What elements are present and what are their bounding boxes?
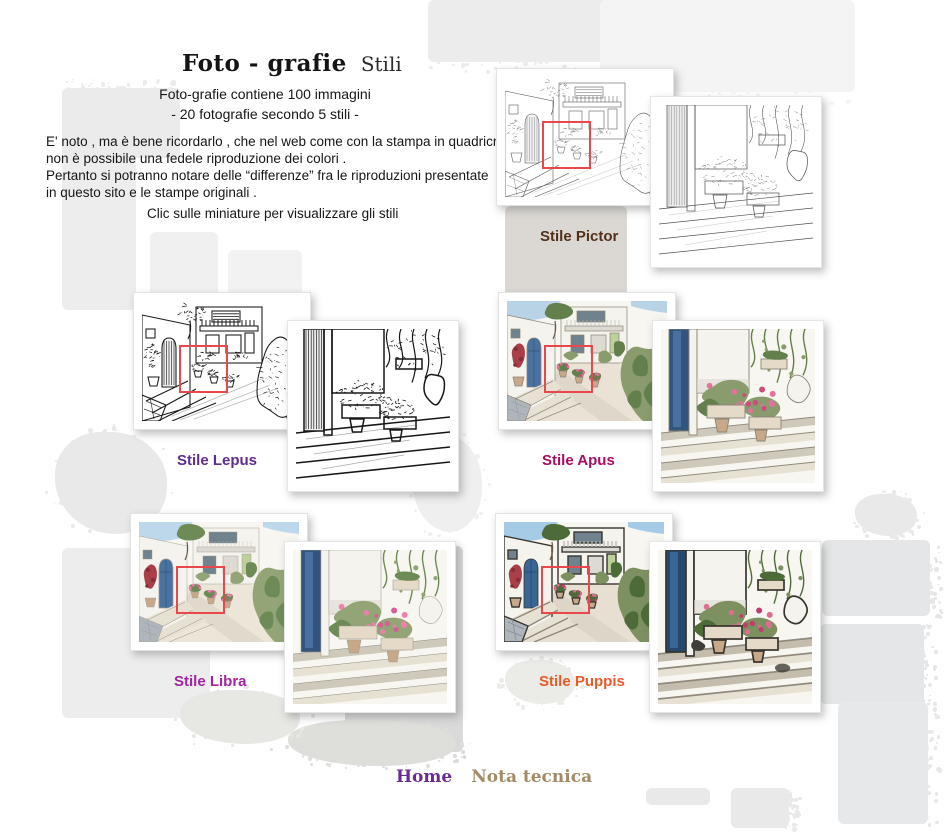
style-detail-image-pictor[interactable] — [650, 96, 822, 268]
splatter-dot — [507, 60, 509, 62]
splatter-dot — [923, 576, 924, 577]
splatter-dot — [193, 743, 195, 745]
splatter-texture — [855, 494, 917, 536]
splatter-dot — [927, 649, 928, 650]
splatter-dot — [434, 59, 437, 62]
splatter-dot — [330, 763, 332, 765]
splatter-dot — [798, 797, 801, 800]
splatter-dot — [786, 818, 790, 822]
splatter-dot — [548, 54, 552, 58]
splatter-dot — [73, 444, 75, 446]
splatter-dot — [499, 62, 502, 65]
splatter-dot — [926, 604, 929, 607]
splatter-dot — [789, 825, 791, 827]
splatter-dot — [428, 532, 432, 536]
splatter-dot — [931, 787, 933, 789]
splatter-dot — [231, 744, 234, 747]
splatter-dot — [501, 684, 506, 689]
splatter-dot — [918, 779, 922, 783]
click-instruction: Clic sulle miniature per visualizzare gl… — [147, 206, 398, 221]
splatter-dot — [441, 761, 442, 762]
splatter-dot — [907, 498, 912, 503]
splatter-dot — [517, 674, 522, 679]
detail-crop-art — [661, 329, 815, 483]
splatter-dot — [863, 530, 867, 534]
splatter-dot — [921, 612, 923, 614]
splatter-dot — [792, 827, 796, 831]
detail-crop-art — [658, 550, 812, 704]
splatter-dot — [440, 754, 445, 759]
splatter-dot — [925, 636, 927, 638]
intro-paragraph: E' noto , ma è bene ricordarlo , che nel… — [46, 133, 527, 201]
splatter-dot — [425, 505, 427, 507]
splatter-dot — [116, 429, 118, 431]
splatter-dot — [195, 696, 197, 698]
style-detail-image-apus[interactable] — [652, 320, 824, 492]
splatter-dot — [901, 491, 902, 492]
splatter-dot — [927, 574, 929, 576]
splatter-dot — [515, 661, 516, 662]
splatter-dot — [465, 63, 468, 66]
splatter-dot — [80, 440, 83, 443]
splatter-dot — [226, 697, 231, 702]
splatter-dot — [443, 66, 444, 67]
splatter-dot — [936, 742, 938, 744]
splatter-dot — [86, 84, 87, 85]
splatter-dot — [921, 589, 925, 593]
splatter-dot — [516, 702, 520, 706]
splatter-dot — [922, 705, 926, 709]
splatter-dot — [563, 662, 564, 663]
splatter-dot — [795, 813, 800, 818]
footer-nav: Home Nota tecnica — [396, 767, 592, 787]
splatter-dot — [718, 92, 722, 96]
splatter-dot — [521, 705, 526, 710]
splatter-dot — [71, 474, 72, 475]
splatter-dot — [70, 479, 73, 482]
splatter-dot — [917, 525, 921, 529]
splatter-dot — [791, 790, 792, 791]
splatter-dot — [99, 90, 104, 95]
splatter-dot — [917, 631, 920, 634]
background-collage-shape — [822, 540, 930, 616]
style-thumbnail-libra[interactable] — [130, 513, 308, 651]
style-label-lepus: Stile Lepus — [177, 452, 257, 469]
splatter-dot — [794, 798, 798, 802]
splatter-dot — [240, 692, 245, 697]
splatter-dot — [103, 429, 106, 432]
style-detail-image-lepus[interactable] — [287, 320, 459, 492]
splatter-dot — [543, 709, 545, 711]
splatter-dot — [871, 529, 874, 532]
style-thumbnail-pictor[interactable] — [496, 68, 674, 206]
splatter-dot — [453, 760, 456, 763]
splatter-dot — [60, 490, 63, 493]
splatter-dot — [937, 735, 941, 739]
background-collage-shape — [838, 702, 928, 824]
splatter-dot — [923, 730, 927, 734]
splatter-dot — [327, 757, 329, 759]
splatter-dot — [905, 493, 907, 495]
splatter-dot — [938, 768, 942, 772]
splatter-dot — [933, 592, 937, 596]
splatter-dot — [890, 534, 895, 539]
splatter-dot — [421, 495, 423, 497]
splatter-dot — [66, 461, 69, 464]
splatter-dot — [364, 727, 366, 729]
splatter-dot — [481, 64, 483, 66]
detail-crop-art — [293, 550, 447, 704]
splatter-dot — [55, 460, 57, 462]
style-thumbnail-puppis[interactable] — [495, 513, 673, 651]
splatter-dot — [923, 725, 926, 728]
splatter-dot — [162, 448, 165, 451]
splatter-dot — [924, 754, 926, 756]
splatter-dot — [197, 707, 201, 711]
splatter-dot — [927, 785, 930, 788]
splatter-dot — [781, 792, 785, 796]
style-detail-image-puppis[interactable] — [649, 541, 821, 713]
splatter-dot — [192, 734, 196, 738]
splatter-dot — [174, 718, 177, 721]
splatter-dot — [929, 695, 930, 696]
splatter-dot — [529, 667, 533, 671]
splatter-dot — [711, 90, 714, 93]
splatter-dot — [938, 552, 940, 554]
splatter-dot — [431, 755, 434, 758]
splatter-dot — [431, 53, 434, 56]
splatter-dot — [343, 721, 345, 723]
splatter-dot — [918, 766, 921, 769]
splatter-dot — [935, 615, 939, 619]
splatter-dot — [916, 624, 920, 628]
splatter-dot — [933, 665, 937, 669]
splatter-dot — [922, 628, 924, 630]
splatter-dot — [171, 492, 173, 494]
splatter-dot — [255, 697, 258, 700]
splatter-dot — [78, 457, 79, 458]
splatter-dot — [409, 494, 413, 498]
splatter-dot — [461, 63, 466, 68]
splatter-dot — [911, 518, 914, 521]
splatter-dot — [67, 87, 70, 90]
splatter-dot — [471, 515, 474, 518]
splatter-dot — [396, 727, 400, 731]
splatter-dot — [920, 665, 924, 669]
splatter-dot — [923, 801, 925, 803]
splatter-dot — [927, 768, 930, 771]
splatter-dot — [424, 530, 427, 533]
splatter-dot — [437, 756, 438, 757]
splatter-dot — [71, 524, 75, 528]
page-title: Foto - grafieStili — [182, 50, 402, 77]
splatter-dot — [80, 448, 81, 449]
intro-paragraph-line-1: E' noto , ma è bene ricordarlo , che nel… — [46, 133, 527, 150]
splatter-dot — [933, 707, 938, 712]
splatter-dot — [864, 515, 868, 519]
splatter-dot — [337, 724, 340, 727]
splatter-dot — [929, 569, 931, 571]
splatter-dot — [551, 662, 554, 665]
splatter-dot — [332, 759, 336, 763]
splatter-dot — [783, 790, 785, 792]
splatter-dot — [83, 445, 85, 447]
splatter-dot — [283, 727, 286, 730]
splatter-dot — [511, 57, 515, 61]
splatter-dot — [486, 70, 490, 74]
splatter-dot — [469, 460, 470, 461]
splatter-dot — [147, 453, 152, 458]
splatter-dot — [81, 85, 86, 90]
splatter-dot — [862, 501, 865, 504]
page-title-sub: Stili — [361, 52, 402, 76]
splatter-dot — [940, 611, 943, 614]
splatter-dot — [910, 530, 914, 534]
foto-grafie-stili-page: Foto - grafieStili Foto-grafie contiene … — [0, 0, 950, 840]
splatter-dot — [419, 506, 423, 510]
splatter-dot — [934, 567, 939, 572]
splatter-dot — [310, 763, 313, 766]
splatter-dot — [566, 667, 571, 672]
splatter-dot — [196, 721, 199, 724]
splatter-dot — [914, 635, 918, 639]
splatter-dot — [282, 723, 283, 724]
splatter-dot — [88, 537, 89, 538]
splatter-dot — [108, 86, 111, 89]
splatter-dot — [316, 759, 318, 761]
splatter-dot — [308, 757, 312, 761]
splatter-dot — [892, 490, 896, 494]
splatter-dot — [923, 512, 925, 514]
splatter-dot — [423, 511, 426, 514]
splatter-dot — [111, 447, 114, 450]
splatter-dot — [449, 747, 454, 752]
splatter-dot — [463, 443, 465, 445]
splatter-dot — [858, 517, 859, 518]
splatter-dot — [865, 534, 869, 538]
splatter-dot — [922, 671, 923, 672]
intro-paragraph-line-3: Pertanto si potranno notare delle “diffe… — [46, 167, 527, 184]
splatter-dot — [732, 85, 734, 87]
splatter-dot — [746, 91, 749, 94]
splatter-dot — [486, 478, 488, 480]
zoom-region-marker — [542, 121, 591, 169]
splatter-dot — [309, 726, 310, 727]
style-label-puppis: Stile Puppis — [539, 673, 625, 690]
splatter-dot — [438, 760, 440, 762]
splatter-dot — [270, 748, 273, 751]
splatter-dot — [467, 442, 469, 444]
splatter-dot — [539, 656, 544, 661]
splatter-dot — [249, 737, 253, 741]
splatter-dot — [934, 676, 938, 680]
splatter-dot — [441, 520, 446, 525]
home-link[interactable]: Home — [396, 767, 452, 787]
splatter-dot — [127, 440, 131, 444]
splatter-dot — [357, 764, 360, 767]
intro-paragraph-line-4: in questo sito e le stampe originali . — [46, 184, 527, 201]
splatter-dot — [505, 688, 506, 689]
splatter-dot — [428, 724, 432, 728]
splatter-dot — [58, 460, 61, 463]
splatter-dot — [927, 791, 931, 795]
page-title-main: Foto - grafie — [182, 50, 347, 77]
splatter-dot — [54, 502, 56, 504]
splatter-dot — [723, 88, 726, 91]
splatter-dot — [896, 538, 899, 541]
splatter-dot — [919, 711, 921, 713]
splatter-dot — [183, 707, 186, 710]
splatter-dot — [479, 512, 482, 515]
splatter-dot — [920, 602, 922, 604]
splatter-dot — [71, 511, 72, 512]
splatter-dot — [455, 524, 458, 527]
splatter-dot — [830, 102, 834, 106]
splatter-dot — [922, 684, 926, 688]
splatter-dot — [920, 706, 923, 709]
splatter-dot — [789, 792, 793, 796]
splatter-texture — [288, 720, 456, 766]
splatter-dot — [928, 818, 929, 819]
splatter-dot — [929, 740, 932, 743]
splatter-dot — [302, 753, 305, 756]
splatter-dot — [421, 732, 423, 734]
splatter-dot — [311, 714, 315, 718]
splatter-dot — [922, 560, 924, 562]
splatter-dot — [414, 509, 418, 513]
splatter-dot — [792, 823, 795, 826]
splatter-dot — [514, 698, 517, 701]
splatter-dot — [928, 730, 931, 733]
intro-line-1: Foto-grafie contiene 100 immagini — [115, 86, 415, 102]
splatter-dot — [928, 764, 932, 768]
splatter-dot — [560, 701, 564, 705]
splatter-dot — [71, 456, 75, 460]
splatter-dot — [204, 737, 207, 740]
splatter-dot — [404, 722, 406, 724]
style-label-apus: Stile Apus — [542, 452, 615, 469]
splatter-dot — [59, 501, 63, 505]
splatter-dot — [538, 60, 542, 64]
zoom-region-marker — [541, 566, 590, 614]
splatter-dot — [939, 587, 943, 591]
splatter-dot — [327, 725, 330, 728]
splatter-dot — [463, 755, 466, 758]
splatter-dot — [873, 497, 878, 502]
splatter-dot — [939, 602, 941, 604]
splatter-dot — [437, 61, 440, 64]
splatter-dot — [511, 689, 514, 692]
splatter-dot — [575, 695, 578, 698]
splatter-dot — [418, 498, 419, 499]
splatter-dot — [731, 90, 736, 95]
splatter-dot — [932, 601, 936, 605]
splatter-dot — [925, 693, 927, 695]
splatter-dot — [916, 519, 919, 522]
splatter-dot — [108, 82, 110, 84]
splatter-dot — [904, 497, 907, 500]
splatter-dot — [545, 665, 549, 669]
splatter-dot — [932, 605, 937, 610]
splatter-dot — [132, 435, 136, 439]
splatter-dot — [889, 532, 892, 535]
splatter-dot — [921, 695, 924, 698]
splatter-dot — [866, 526, 870, 530]
splatter-dot — [254, 693, 257, 696]
splatter-dot — [784, 85, 787, 88]
splatter-dot — [552, 707, 554, 709]
splatter-dot — [72, 81, 74, 83]
splatter-dot — [150, 489, 154, 493]
splatter-dot — [444, 525, 446, 527]
splatter-dot — [481, 502, 483, 504]
splatter-dot — [534, 62, 537, 65]
splatter-dot — [793, 89, 798, 94]
splatter-dot — [559, 660, 562, 663]
splatter-dot — [935, 821, 938, 824]
splatter-dot — [513, 670, 516, 673]
splatter-dot — [527, 705, 528, 706]
splatter-dot — [287, 716, 291, 720]
style-thumbnail-lepus[interactable] — [133, 292, 311, 430]
splatter-dot — [290, 734, 293, 737]
splatter-dot — [737, 82, 740, 85]
splatter-dot — [464, 56, 465, 57]
splatter-dot — [922, 654, 926, 658]
style-thumbnail-apus[interactable] — [498, 292, 676, 430]
splatter-dot — [909, 510, 911, 512]
style-detail-image-libra[interactable] — [284, 541, 456, 713]
splatter-dot — [474, 514, 479, 519]
splatter-dot — [924, 721, 926, 723]
splatter-dot — [934, 597, 937, 600]
splatter-dot — [785, 827, 787, 829]
splatter-dot — [541, 703, 544, 706]
splatter-dot — [935, 792, 939, 796]
splatter-dot — [86, 453, 91, 458]
splatter-dot — [146, 444, 148, 446]
splatter-dot — [385, 767, 388, 770]
splatter-dot — [215, 690, 219, 694]
splatter-dot — [925, 677, 928, 680]
splatter-dot — [877, 497, 880, 500]
splatter-dot — [796, 824, 798, 826]
splatter-dot — [461, 750, 465, 754]
splatter-dot — [937, 546, 940, 549]
splatter-dot — [456, 748, 460, 752]
splatter-dot — [923, 580, 925, 582]
splatter-dot — [302, 756, 304, 758]
splatter-dot — [308, 752, 312, 756]
splatter-dot — [104, 92, 108, 96]
splatter-dot — [533, 660, 535, 662]
splatter-dot — [927, 703, 930, 706]
splatter-dot — [88, 85, 91, 88]
splatter-dot — [929, 756, 933, 760]
splatter-dot — [475, 454, 479, 458]
splatter-dot — [921, 817, 926, 822]
splatter-dot — [288, 729, 290, 731]
splatter-dot — [514, 663, 519, 668]
splatter-dot — [529, 697, 534, 702]
splatter-dot — [463, 433, 466, 436]
splatter-dot — [782, 815, 784, 817]
splatter-dot — [919, 774, 923, 778]
nota-tecnica-link[interactable]: Nota tecnica — [471, 767, 592, 787]
splatter-dot — [157, 79, 161, 83]
splatter-dot — [429, 738, 431, 740]
splatter-dot — [164, 485, 166, 487]
